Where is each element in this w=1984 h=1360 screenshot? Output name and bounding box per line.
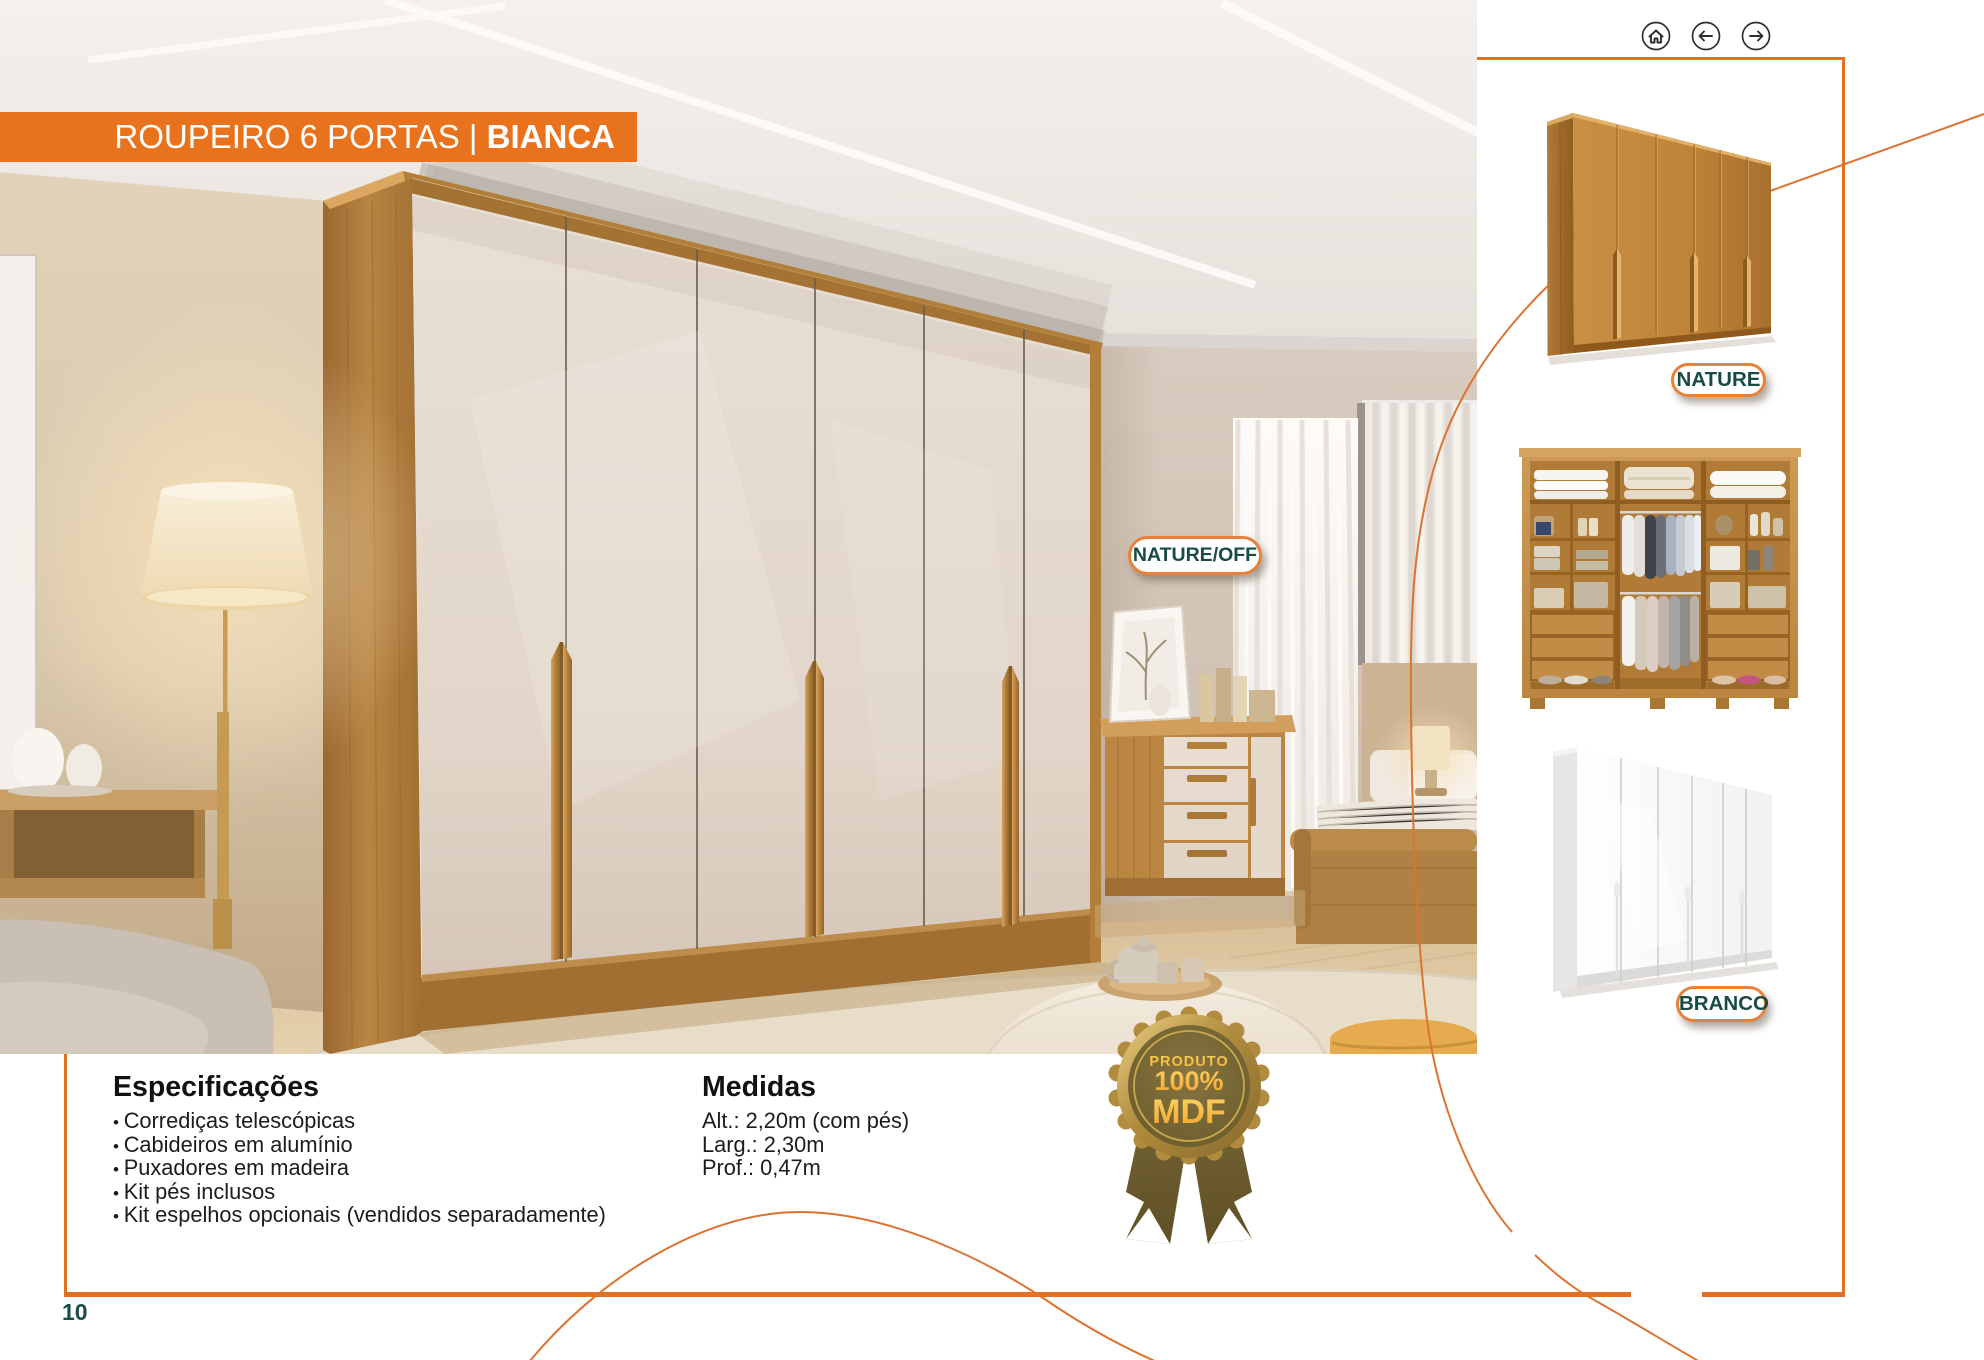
svg-text:100%: 100% — [1154, 1066, 1223, 1096]
svg-text:MDF: MDF — [1152, 1093, 1226, 1131]
